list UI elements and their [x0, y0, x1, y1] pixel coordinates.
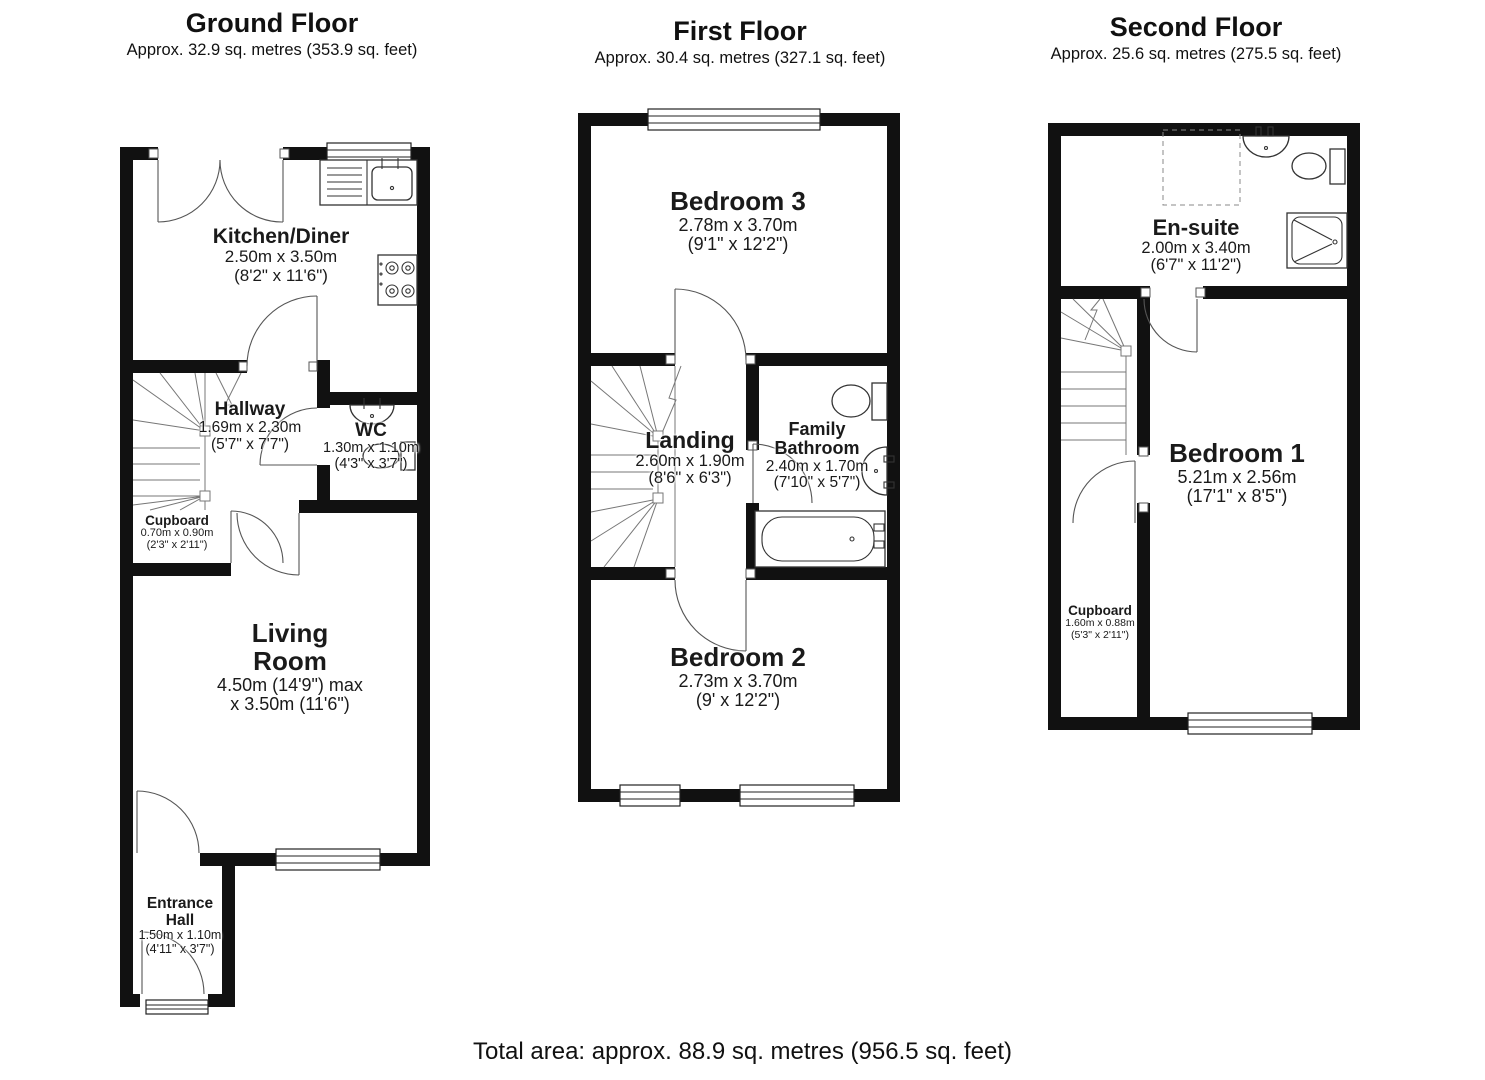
room-name: Bathroom	[766, 439, 869, 458]
room-dims-imperial: (17'1" x 8'5")	[1169, 487, 1305, 506]
room-dims-imperial: (9' x 12'2")	[670, 691, 806, 710]
room-name: Living	[217, 620, 363, 648]
ensuite-door-arc	[1144, 299, 1197, 352]
room-name: WC	[323, 421, 419, 441]
second-stairs	[1061, 299, 1131, 455]
room-name: Hall	[139, 913, 222, 930]
room-dims-metric: 4.50m (14'9") max	[217, 676, 363, 695]
room-name: En-suite	[1141, 216, 1250, 240]
entrance-inner-door-arc	[137, 791, 199, 853]
room-name: Hallway	[199, 400, 302, 420]
room-label-landing: Landing 2.60m x 1.90m (8'6" x 6'3")	[635, 428, 744, 488]
room-dims-metric: 1.60m x 0.88m	[1065, 618, 1134, 629]
room-dims-imperial: (4'11" x 3'7")	[139, 943, 222, 956]
ground-floor-area: Approx. 32.9 sq. metres (353.9 sq. feet)	[127, 41, 418, 60]
first-floor-title: First Floor	[673, 16, 807, 47]
room-name: Entrance	[139, 896, 222, 913]
bedroom1-window	[1188, 713, 1312, 734]
room-name: Landing	[635, 428, 744, 453]
room-label-cupboard-second: Cupboard 1.60m x 0.88m (5'3" x 2'11")	[1065, 604, 1134, 641]
room-dims-imperial: (8'2" x 11'6")	[213, 267, 350, 285]
kitchen-sink-unit	[320, 158, 417, 205]
living-room-door-arc	[237, 513, 299, 575]
room-name: Bedroom 1	[1169, 440, 1305, 468]
room-label-bedroom2: Bedroom 2 2.73m x 3.70m (9' x 12'2")	[670, 644, 806, 710]
room-label-living-room: Living Room 4.50m (14'9") max x 3.50m (1…	[217, 620, 363, 714]
room-dims-metric: 1.30m x 1.10m	[323, 441, 419, 457]
ensuite-toilet	[1292, 149, 1345, 184]
room-dims-imperial: (5'3" x 2'11")	[1065, 630, 1134, 641]
room-dims-metric: 5.21m x 2.56m	[1169, 468, 1305, 487]
room-dims-metric: 2.40m x 1.70m	[766, 459, 869, 476]
room-label-family-bathroom: Family Bathroom 2.40m x 1.70m (7'10" x 5…	[766, 420, 869, 492]
room-label-cupboard-ground: Cupboard 0.70m x 0.90m (2'3" x 2'11")	[141, 514, 214, 552]
room-dims-imperial: x 3.50m (11'6")	[217, 695, 363, 714]
bedroom2-door-arc	[675, 580, 746, 651]
room-dims-imperial: (9'1" x 12'2")	[670, 235, 806, 254]
floorplan-page: Ground Floor Approx. 32.9 sq. metres (35…	[0, 0, 1485, 1080]
room-dims-imperial: (4'3" x 3'7")	[323, 457, 419, 473]
ensuite-dashed-area	[1163, 130, 1240, 205]
room-name: Bedroom 2	[670, 644, 806, 672]
bedroom2-window-left	[620, 785, 680, 806]
french-doors-arc	[158, 160, 283, 222]
room-dims-metric: 2.00m x 3.40m	[1141, 240, 1250, 258]
room-name: Room	[217, 648, 363, 676]
room-dims-metric: 2.78m x 3.70m	[670, 216, 806, 235]
room-dims-imperial: (7'10" x 5'7")	[766, 475, 869, 492]
second-floor-title: Second Floor	[1110, 12, 1283, 43]
room-dims-metric: 2.60m x 1.90m	[635, 453, 744, 471]
ground-floor-title: Ground Floor	[186, 8, 358, 39]
kitchen-door-arc	[247, 296, 317, 366]
second-windows	[1188, 713, 1312, 734]
room-dims-metric: 2.50m x 3.50m	[213, 248, 350, 266]
room-label-wc: WC 1.30m x 1.10m (4'3" x 3'7")	[323, 421, 419, 472]
room-label-ensuite: En-suite 2.00m x 3.40m (6'7" x 11'2")	[1141, 216, 1250, 275]
room-label-hallway: Hallway 1.69m x 2.30m (5'7" x 7'7")	[199, 400, 302, 453]
shower	[1287, 213, 1347, 268]
second-floor-area: Approx. 25.6 sq. metres (275.5 sq. feet)	[1051, 45, 1342, 64]
cupboard-door-arc-second	[1073, 461, 1135, 523]
cupboard-door-arc	[231, 511, 283, 563]
first-floor-area: Approx. 30.4 sq. metres (327.1 sq. feet)	[595, 49, 886, 68]
bathtub	[755, 511, 885, 567]
room-dims-imperial: (8'6" x 6'3")	[635, 470, 744, 488]
bedroom2-window-right	[740, 785, 854, 806]
room-name: Bedroom 3	[670, 188, 806, 216]
room-label-bedroom1: Bedroom 1 5.21m x 2.56m (17'1" x 8'5")	[1169, 440, 1305, 506]
bedroom3-window	[648, 109, 820, 130]
room-label-entrance-hall: Entrance Hall 1.50m x 1.10m (4'11" x 3'7…	[139, 896, 222, 956]
room-label-bedroom3: Bedroom 3 2.78m x 3.70m (9'1" x 12'2")	[670, 188, 806, 254]
room-dims-imperial: (2'3" x 2'11")	[141, 540, 214, 552]
bedroom3-door-arc	[675, 289, 746, 360]
room-dims-imperial: (6'7" x 11'2")	[1141, 257, 1250, 275]
total-area-text: Total area: approx. 88.9 sq. metres (956…	[0, 1038, 1485, 1066]
room-label-kitchen: Kitchen/Diner 2.50m x 3.50m (8'2" x 11'6…	[213, 226, 350, 285]
bathroom-toilet	[832, 383, 887, 420]
hob	[378, 255, 417, 305]
second-floor-plan	[1040, 115, 1368, 735]
living-room-window	[276, 849, 380, 870]
entrance-window	[146, 1000, 208, 1014]
room-name: Kitchen/Diner	[213, 226, 350, 248]
room-name: Family	[766, 420, 869, 439]
room-dims-metric: 1.50m x 1.10m	[139, 929, 222, 942]
room-dims-imperial: (5'7" x 7'7")	[199, 437, 302, 454]
room-dims-metric: 1.69m x 2.30m	[199, 420, 302, 437]
room-dims-metric: 2.73m x 3.70m	[670, 672, 806, 691]
